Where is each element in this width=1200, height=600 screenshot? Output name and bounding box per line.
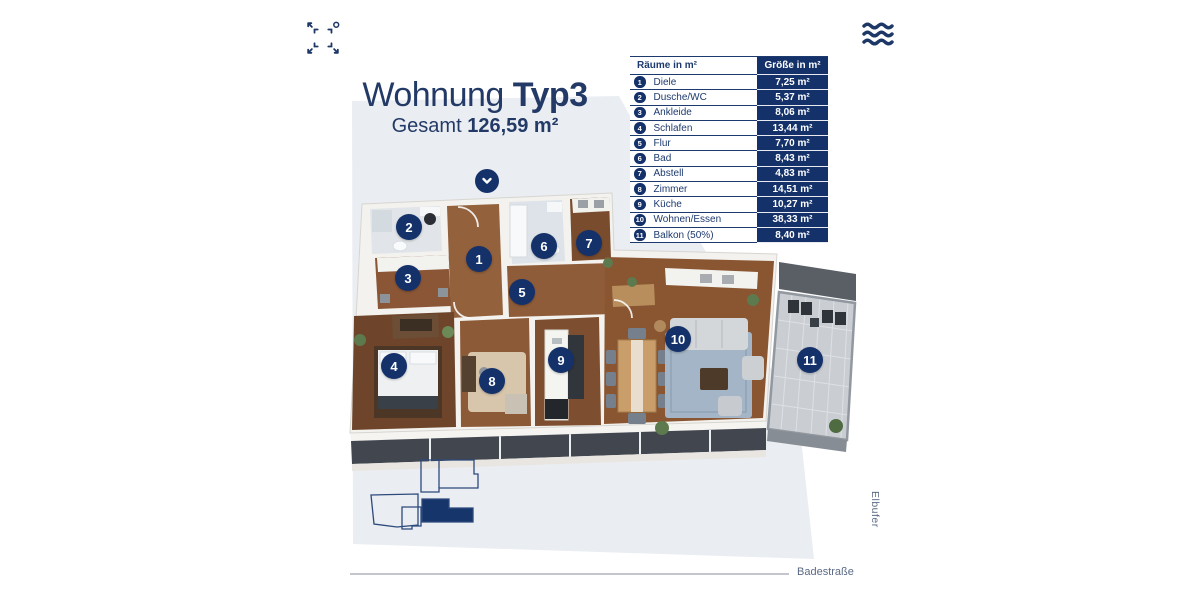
room-name-cell: 5Flur: [630, 136, 757, 151]
room-name-cell: 3Ankleide: [630, 106, 757, 121]
room-marker-4: 4: [381, 353, 407, 379]
room-marker-9: 9: [548, 347, 574, 373]
table-row: 2Dusche/WC5,37 m²: [630, 90, 828, 105]
room-marker-2: 2: [396, 214, 422, 240]
room-table-rows: 1Diele7,25 m²2Dusche/WC5,37 m²3Ankleide8…: [630, 75, 828, 243]
room-size-cell: 38,33 m²: [757, 213, 828, 228]
table-row: 4Schlafen13,44 m²: [630, 121, 828, 136]
room-name-label: Ankleide: [654, 107, 692, 118]
room-name-cell: 4Schlafen: [630, 121, 757, 136]
room-name-cell: 2Dusche/WC: [630, 90, 757, 105]
room-size-cell: 7,70 m²: [757, 136, 828, 151]
table-row: 7Abstell4,83 m²: [630, 167, 828, 182]
room-size-cell: 10,27 m²: [757, 197, 828, 212]
room-number-badge: 2: [634, 92, 646, 104]
room-name-cell: 1Diele: [630, 75, 757, 90]
room-marker-10: 10: [665, 326, 691, 352]
table-row: 6Bad8,43 m²: [630, 151, 828, 166]
room-name-label: Diele: [654, 77, 677, 88]
room-size-cell: 13,44 m²: [757, 121, 828, 136]
page-title: Wohnung Typ3: [320, 76, 630, 115]
room-marker-6: 6: [531, 233, 557, 259]
room-name-label: Bad: [654, 153, 672, 164]
room-number-badge: 11: [634, 229, 646, 241]
table-header: Räume in m² Größe in m²: [630, 56, 828, 75]
room-number-badge: 10: [634, 214, 646, 226]
room-marker-8: 8: [479, 368, 505, 394]
table-row: 11Balkon (50%)8,40 m²: [630, 228, 828, 243]
room-size-table: Räume in m² Größe in m² 1Diele7,25 m²2Du…: [630, 56, 828, 243]
page-subtitle: Gesamt 126,59 m²: [320, 115, 630, 138]
room-number-badge: 5: [634, 138, 646, 150]
header-rooms: Räume in m²: [630, 57, 757, 75]
room-size-cell: 4,83 m²: [757, 167, 828, 182]
room-number-badge: 9: [634, 199, 646, 211]
compass-expand-icon[interactable]: [305, 20, 341, 56]
room-name-label: Dusche/WC: [654, 92, 707, 103]
water-waves-icon: [862, 21, 894, 49]
scroll-down-button[interactable]: [475, 169, 499, 193]
room-size-cell: 7,25 m²: [757, 75, 828, 90]
room-marker-3: 3: [395, 265, 421, 291]
room-size-cell: 8,40 m²: [757, 228, 828, 243]
room-number-badge: 1: [634, 76, 646, 88]
room-name-cell: 10Wohnen/Essen: [630, 213, 757, 228]
room-number-badge: 6: [634, 153, 646, 165]
room-name-label: Schlafen: [654, 123, 693, 134]
table-row: 9Küche10,27 m²: [630, 197, 828, 212]
room-number-badge: 7: [634, 168, 646, 180]
subtitle-regular: Gesamt: [392, 115, 462, 137]
room-number-badge: 8: [634, 183, 646, 195]
room-size-cell: 5,37 m²: [757, 90, 828, 105]
room-name-cell: 6Bad: [630, 151, 757, 166]
room-name-cell: 8Zimmer: [630, 182, 757, 197]
room-number-badge: 3: [634, 107, 646, 119]
title-bold: Typ3: [513, 76, 588, 114]
chevron-down-icon: [479, 173, 495, 189]
room-name-label: Balkon (50%): [654, 230, 714, 241]
room-name-label: Wohnen/Essen: [654, 214, 722, 225]
subtitle-bold: 126,59 m²: [467, 115, 558, 137]
street-label: Badestraße: [797, 566, 854, 578]
table-row: 10Wohnen/Essen38,33 m²: [630, 213, 828, 228]
title-regular: Wohnung: [362, 76, 503, 114]
room-marker-7: 7: [576, 230, 602, 256]
table-row: 5Flur7,70 m²: [630, 136, 828, 151]
table-row: 1Diele7,25 m²: [630, 75, 828, 90]
room-marker-1: 1: [466, 246, 492, 272]
room-marker-5: 5: [509, 279, 535, 305]
room-name-label: Flur: [654, 138, 671, 149]
table-row: 8Zimmer14,51 m²: [630, 182, 828, 197]
room-name-label: Zimmer: [654, 184, 688, 195]
room-size-cell: 14,51 m²: [757, 182, 828, 197]
room-name-cell: 11Balkon (50%): [630, 228, 757, 243]
room-name-cell: 7Abstell: [630, 167, 757, 182]
room-marker-11: 11: [797, 347, 823, 373]
room-name-cell: 9Küche: [630, 197, 757, 212]
river-label: Elbufer: [869, 491, 881, 528]
page: Wohnung Typ3 Gesamt 126,59 m² Räume in m…: [0, 0, 1200, 600]
header-size: Größe in m²: [757, 57, 828, 75]
room-name-label: Küche: [654, 199, 682, 210]
table-row: 3Ankleide8,06 m²: [630, 106, 828, 121]
room-size-cell: 8,06 m²: [757, 106, 828, 121]
room-size-cell: 8,43 m²: [757, 151, 828, 166]
room-name-label: Abstell: [654, 168, 684, 179]
room-number-badge: 4: [634, 122, 646, 134]
